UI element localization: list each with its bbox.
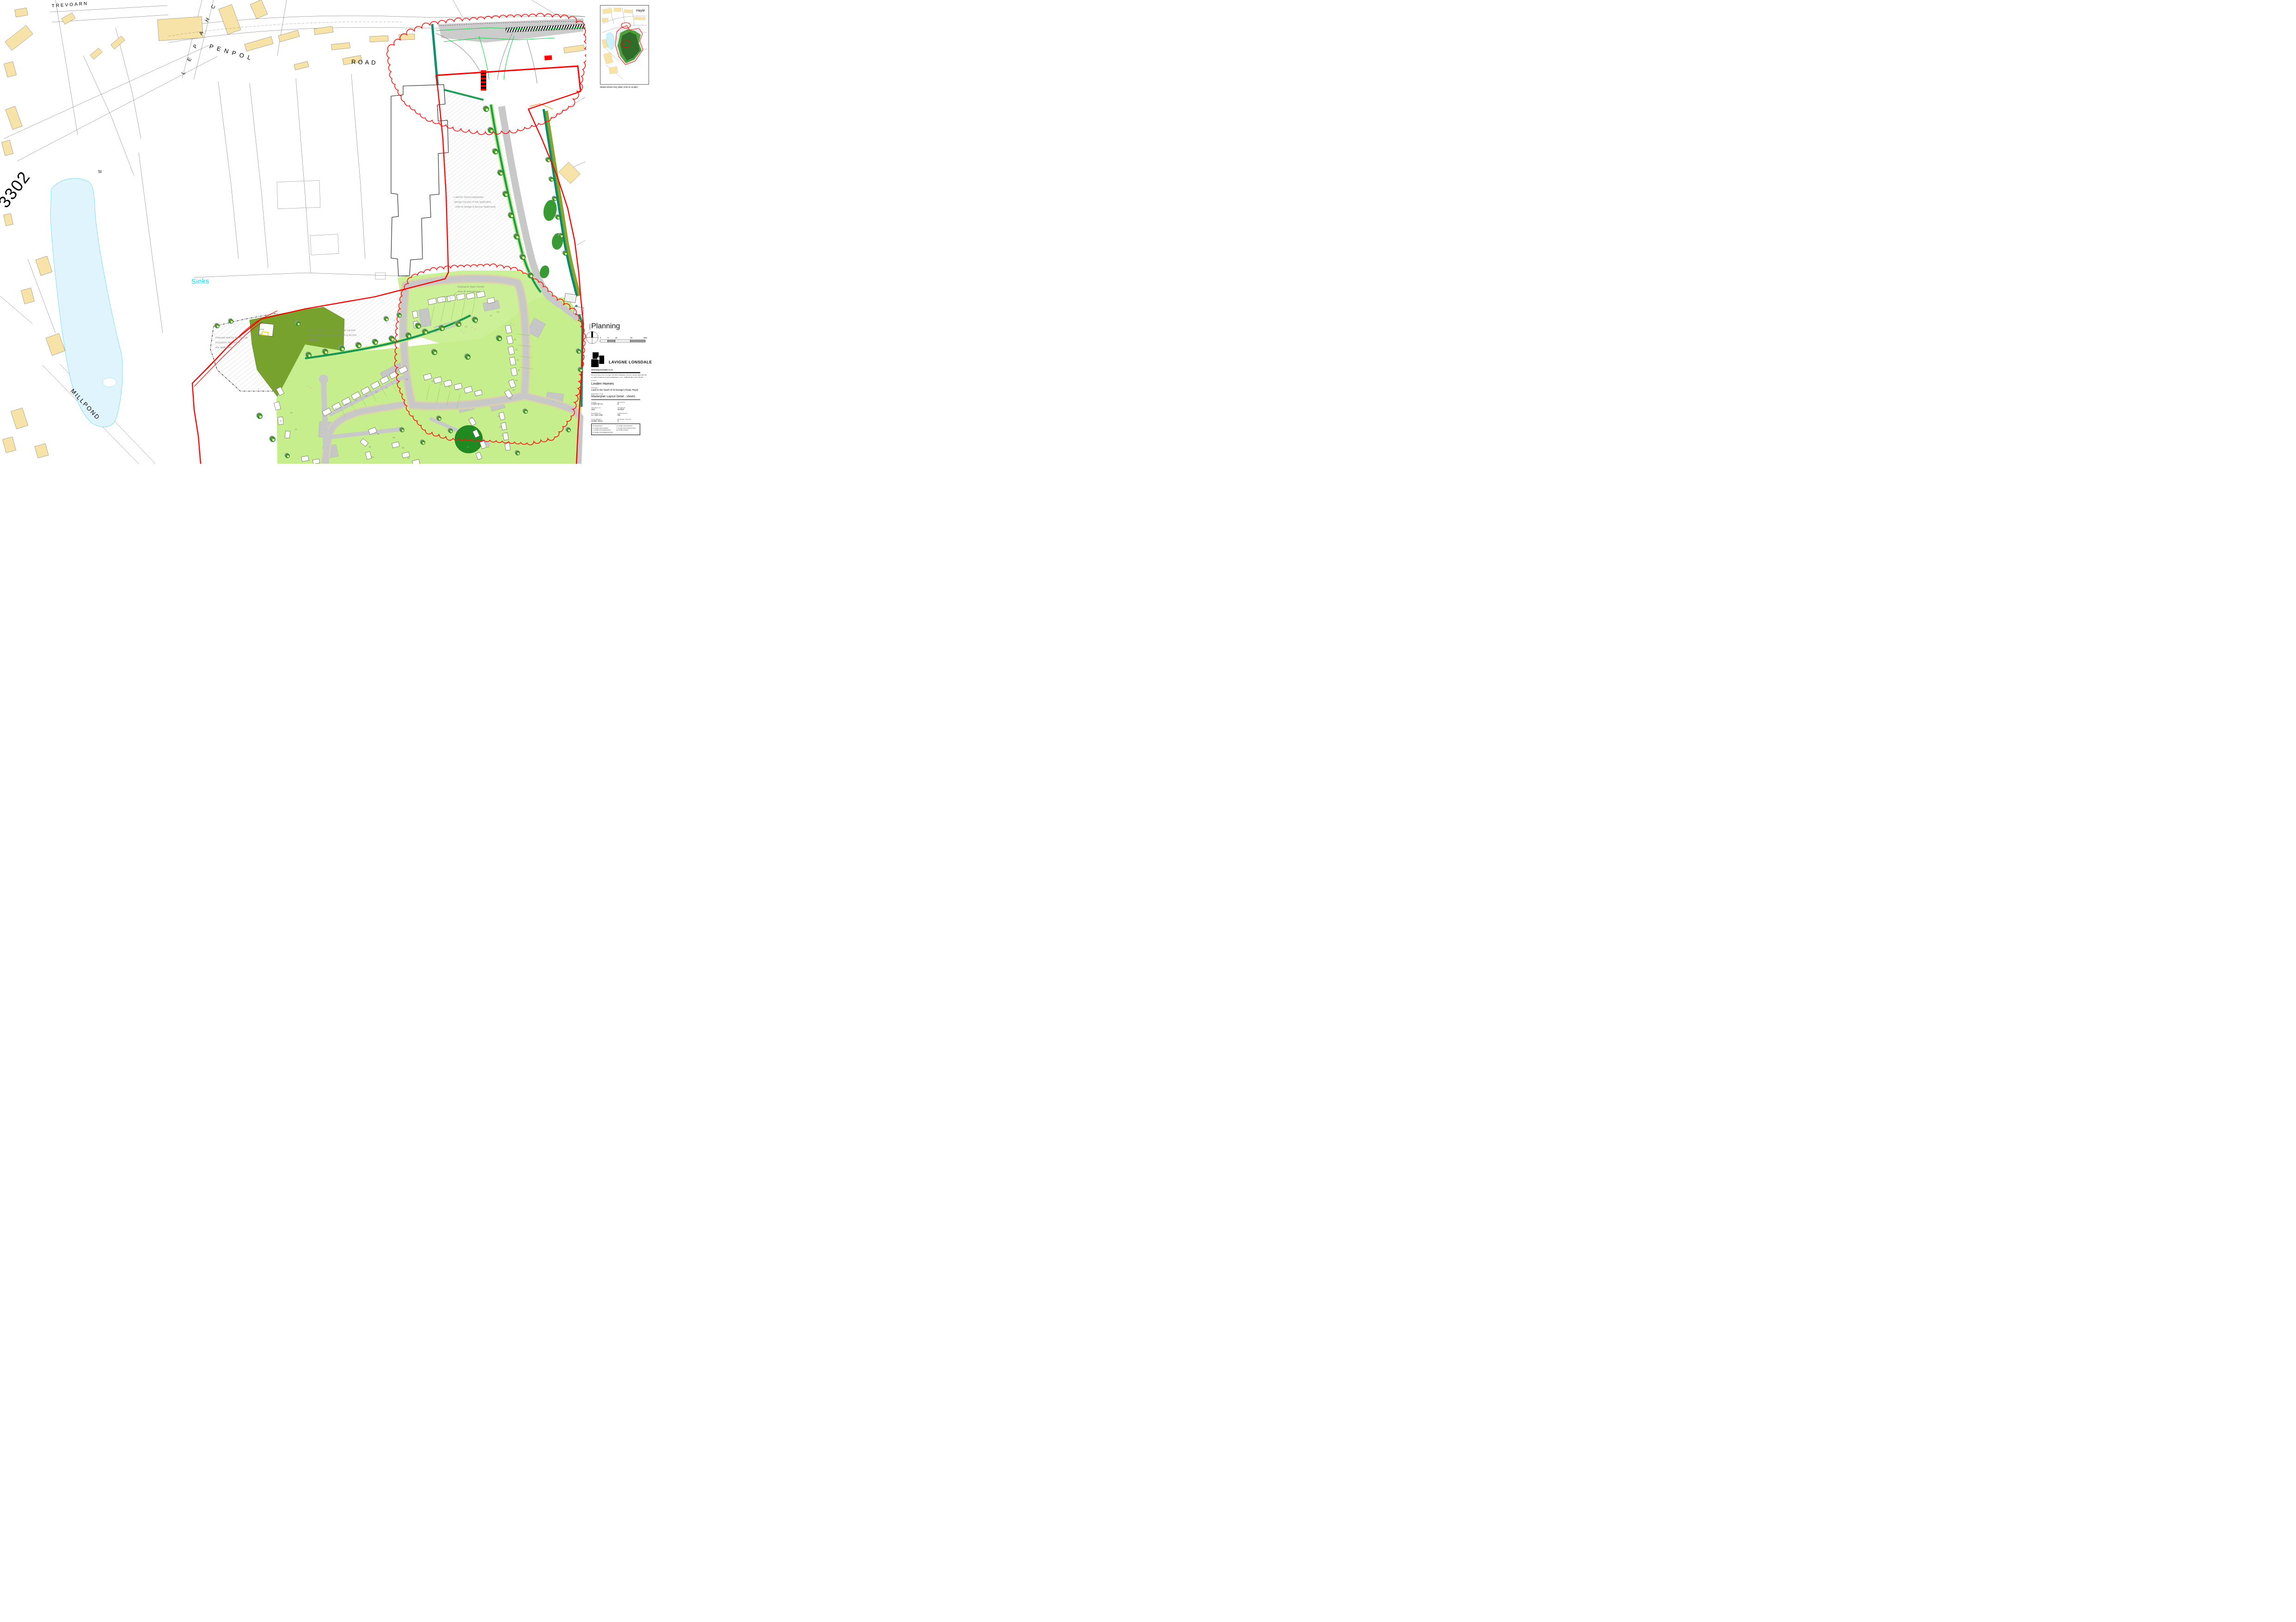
plot-number: 22 [448,386,451,388]
plot-number: 93 [402,447,404,449]
drawing-title: Masterplan Layout Detail - sheet1 [591,395,640,398]
parking-marker: G [258,388,259,390]
plot-number: 28 [509,398,512,400]
north-label: NORTH [589,324,591,330]
garage-plot-ref: 44 [261,390,263,392]
plot-number: 77 [501,435,504,437]
plot-number: 46 [279,420,282,423]
status-legend-row: gISSUED AS BUILT [617,429,640,431]
status-legend-row: dISSUED FOR TENDER/COSTING [593,431,617,434]
status-description: ISSUED FOR PLANNING [594,428,608,429]
parking-marker: G [460,330,461,332]
company-website: www.lavignelonsdale.co.uk [591,369,613,371]
parking-marker: V [386,322,387,324]
plot-number: 78 [499,426,502,429]
garage-plot-ref: 13 [474,328,476,330]
status-key: f [617,427,617,429]
plot-number: 20 [431,380,434,383]
parking-marker: P [394,319,395,321]
plot-number: 41 [344,403,347,406]
status-description: PRELIMINARY [594,425,602,427]
plot-number: 84 [466,446,469,449]
status-legend: aPRELIMINARYbISSUED FOR PLANNINGcISSUED … [591,424,640,435]
status-description: ISSUED FOR APPROVAL [618,425,632,427]
north-compass: NORTH [585,324,599,347]
scale-bar: 0 5 10 20 30m [599,336,650,346]
plot-number: 50 [371,456,374,459]
plot-number: 34 [514,338,516,341]
plot-number: 35 [405,378,408,381]
svg-text:10: 10 [615,337,618,339]
parking-marker: V [536,329,537,331]
plot-number: 40 [355,399,357,402]
existing-building [370,36,389,42]
plot-number: 39 [365,395,367,398]
company-logo: LAVIGNE LONSDALE www.lavignelonsdale.co.… [591,352,651,368]
drawing-sheet: TREVOARNCHAPELPENPOLROAD3302MILLPONDSISi… [0,0,656,464]
plot-number: 16-19 [431,330,437,333]
key-plan-thumbnail: Hayle [600,5,649,85]
keyplan-caption: detail sheet key plan (not to scale) [600,86,655,89]
status-key: b [593,427,594,429]
plot-number: 81 [487,446,490,449]
logo-icon [591,352,607,368]
title-block: 55 Lemon Street, Truro, Cornwall, TR1 2P… [591,372,640,435]
revision-value: E [618,403,640,405]
status-description: ISSUED FOR TENDER/COSTING [594,432,613,433]
pond-island [103,378,116,387]
address-line-1: 55 Lemon Street, Truro, Cornwall, TR1 2P… [591,374,640,376]
project-no-value: 192 [591,409,618,411]
plot-number: 14-15 [453,322,459,325]
plot-number: 37 [385,387,388,389]
parking-marker: G [471,326,472,328]
house-footprint [412,311,418,318]
svg-text:20: 20 [630,337,632,339]
plot-number: 32 [516,359,519,362]
status-key: g [617,429,618,431]
keyplan-place-label: Hayle [636,8,645,12]
plot-number: 44 [294,428,297,431]
plot-number: 38 [375,391,378,393]
plot-number: 21 [440,383,442,386]
project-name: Land to the South of St.George's Road, H… [591,389,640,392]
status-key: a [593,425,594,427]
plot-number: 31 [517,369,520,372]
garage-plot-ref: 38 [310,387,312,389]
plot-number: 49 [368,446,371,449]
address-line-2: tel: 01872 273118 (truro) 01225 421539(b… [591,376,640,378]
garage-plot-ref: 12 [463,332,465,333]
title-block-bar [591,372,640,373]
plot-number: 36 [395,382,398,385]
plot-number: 95 [392,436,395,439]
client-name: Linden Homes [591,381,640,386]
date-value: JUNE 2014 [591,420,618,423]
masterplan-map: TREVOARNCHAPELPENPOLROAD3302MILLPONDSISi… [0,0,656,464]
parking-marker: V [465,409,466,411]
status-key: e [617,425,618,427]
plot-number: 48 [377,433,380,436]
scale-value: 1:500 @ A1 [591,403,618,405]
house-footprint [285,431,290,438]
parking-marker: P [553,401,554,403]
street-label-si: SI [98,169,102,174]
plot-number: 10 [496,311,499,313]
parking-marker: V [493,307,494,309]
plot-number: 29 [512,389,515,392]
company-name: LAVIGNE LONSDALE [609,360,652,364]
plot-number: 42 [334,407,337,410]
existing-building [158,17,203,41]
svg-text:5: 5 [607,337,609,339]
svg-text:0: 0 [600,337,601,339]
plot-number: 11 [490,314,492,317]
plot-number: 23 [456,388,459,391]
plot-number: 76 [504,443,507,446]
plot-number: 47 [276,388,278,391]
street-label-road: ROAD [351,58,378,66]
status-key: c [593,429,594,431]
status-key: d [593,431,594,433]
parking-marker: G [307,385,308,387]
plot-number: 33 [515,349,518,351]
parking-marker: V [425,325,426,327]
drawing-no-value: LL-192-156 [591,414,618,417]
plot-number: 94 [407,457,410,460]
parking-marker: G [510,322,511,324]
checked-by-value: ML [618,414,640,417]
plot-number: 83 [474,428,477,431]
street-label-sinks: Sinks [191,277,210,286]
plot-number: 82 [470,417,473,419]
plot-number: 45 [290,412,293,414]
plot-number: 30 [515,379,518,382]
parking-marker: P [325,429,325,430]
status-description: ISSUED FOR CONSTRUCTION [618,428,635,429]
status-description: ISSUED AS BUILT [618,430,628,431]
garage-plot-ref: 10 [513,324,515,326]
svg-text:30m: 30m [643,337,648,339]
status-description: ISSUED FOR INFORMATION [594,430,611,431]
plot-number: 13 [465,326,467,328]
plot-number: 12 [475,322,478,325]
drawn-by-value: KH/NF [618,409,640,411]
status-value: b [618,420,640,423]
plot-number: 79 [497,415,500,418]
